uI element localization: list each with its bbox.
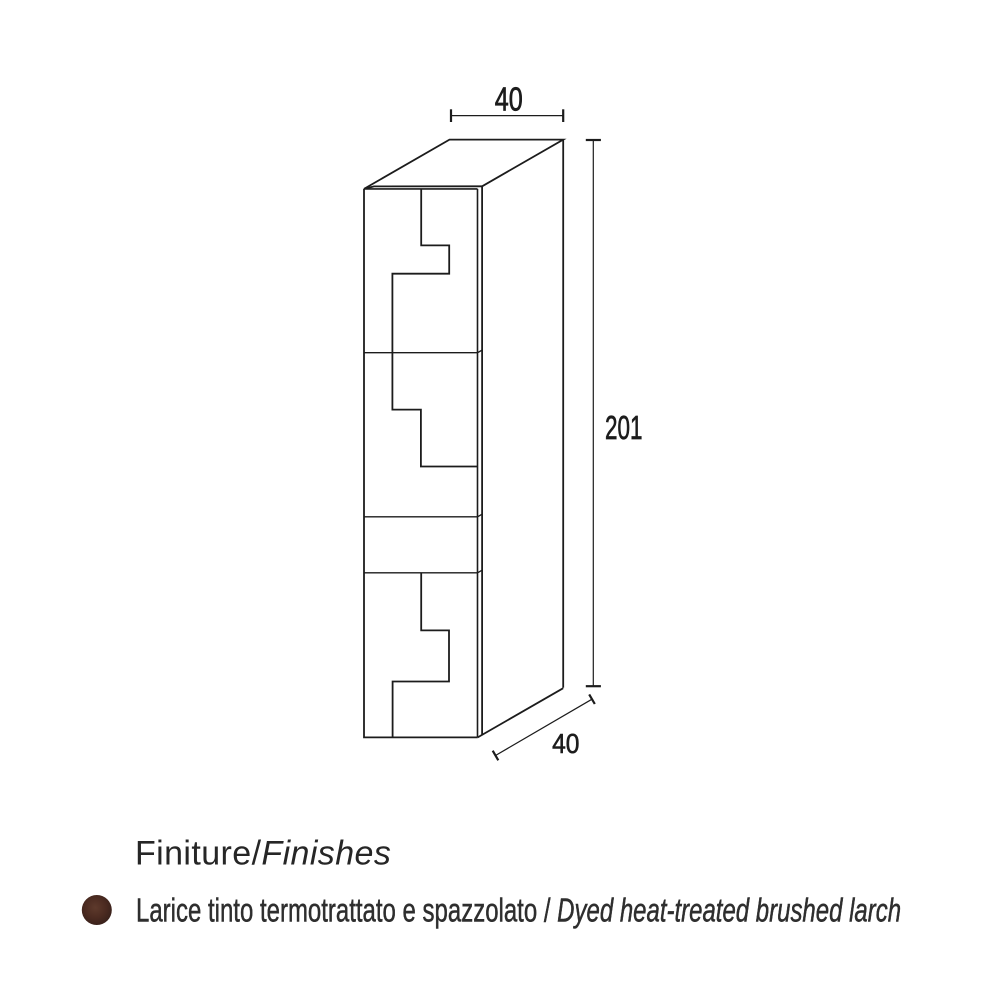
svg-text:Finiture/Finishes: Finiture/Finishes <box>135 835 391 873</box>
svg-text:Larice tinto termotrattato e s: Larice tinto termotrattato e spazzolato … <box>136 893 901 930</box>
svg-text:40: 40 <box>495 81 523 118</box>
svg-text:201: 201 <box>605 409 642 446</box>
svg-text:40: 40 <box>552 728 579 760</box>
